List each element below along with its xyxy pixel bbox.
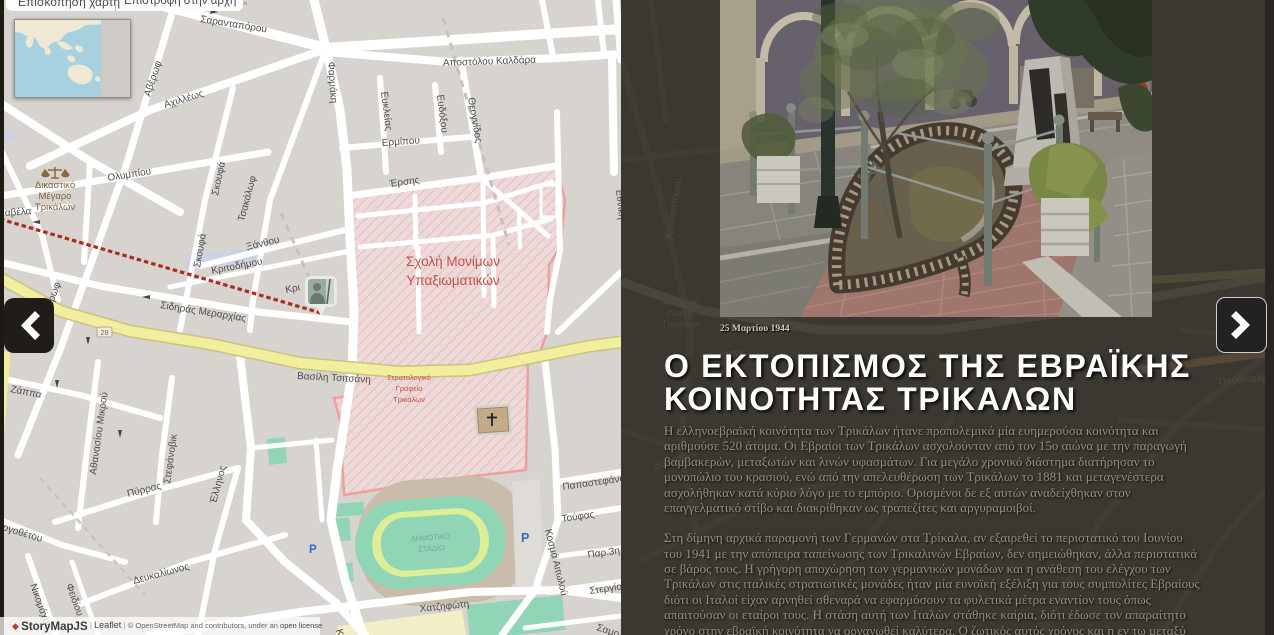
- svg-text:Τρικάλων: Τρικάλων: [35, 202, 75, 213]
- svg-text:Γραφείο: Γραφείο: [396, 384, 423, 393]
- svg-text:4ο Γενικό: 4ο Γενικό: [662, 297, 699, 307]
- svg-text:Δικαστικό: Δικαστικό: [35, 180, 75, 191]
- svg-text:Λύκειο: Λύκειο: [668, 308, 694, 318]
- svg-text:28: 28: [100, 328, 108, 337]
- svg-text:Σχολή Μονίμων: Σχολή Μονίμων: [406, 254, 500, 269]
- svg-text:Στρατολογικό: Στρατολογικό: [387, 373, 431, 382]
- svg-text:P: P: [309, 544, 317, 556]
- svg-text:ΣΤΑΔΙΟ: ΣΤΑΔΙΟ: [418, 543, 445, 554]
- svg-text:Υπαξιωματικών: Υπαξιωματικών: [406, 273, 500, 288]
- svg-text:Τρικάλων: Τρικάλων: [662, 319, 701, 329]
- svg-text:αβέλα: αβέλα: [4, 205, 32, 219]
- svg-text:Τρικάλων: Τρικάλων: [393, 395, 425, 404]
- svg-text:Μέγαρο: Μέγαρο: [38, 191, 71, 202]
- svg-text:P: P: [521, 531, 529, 545]
